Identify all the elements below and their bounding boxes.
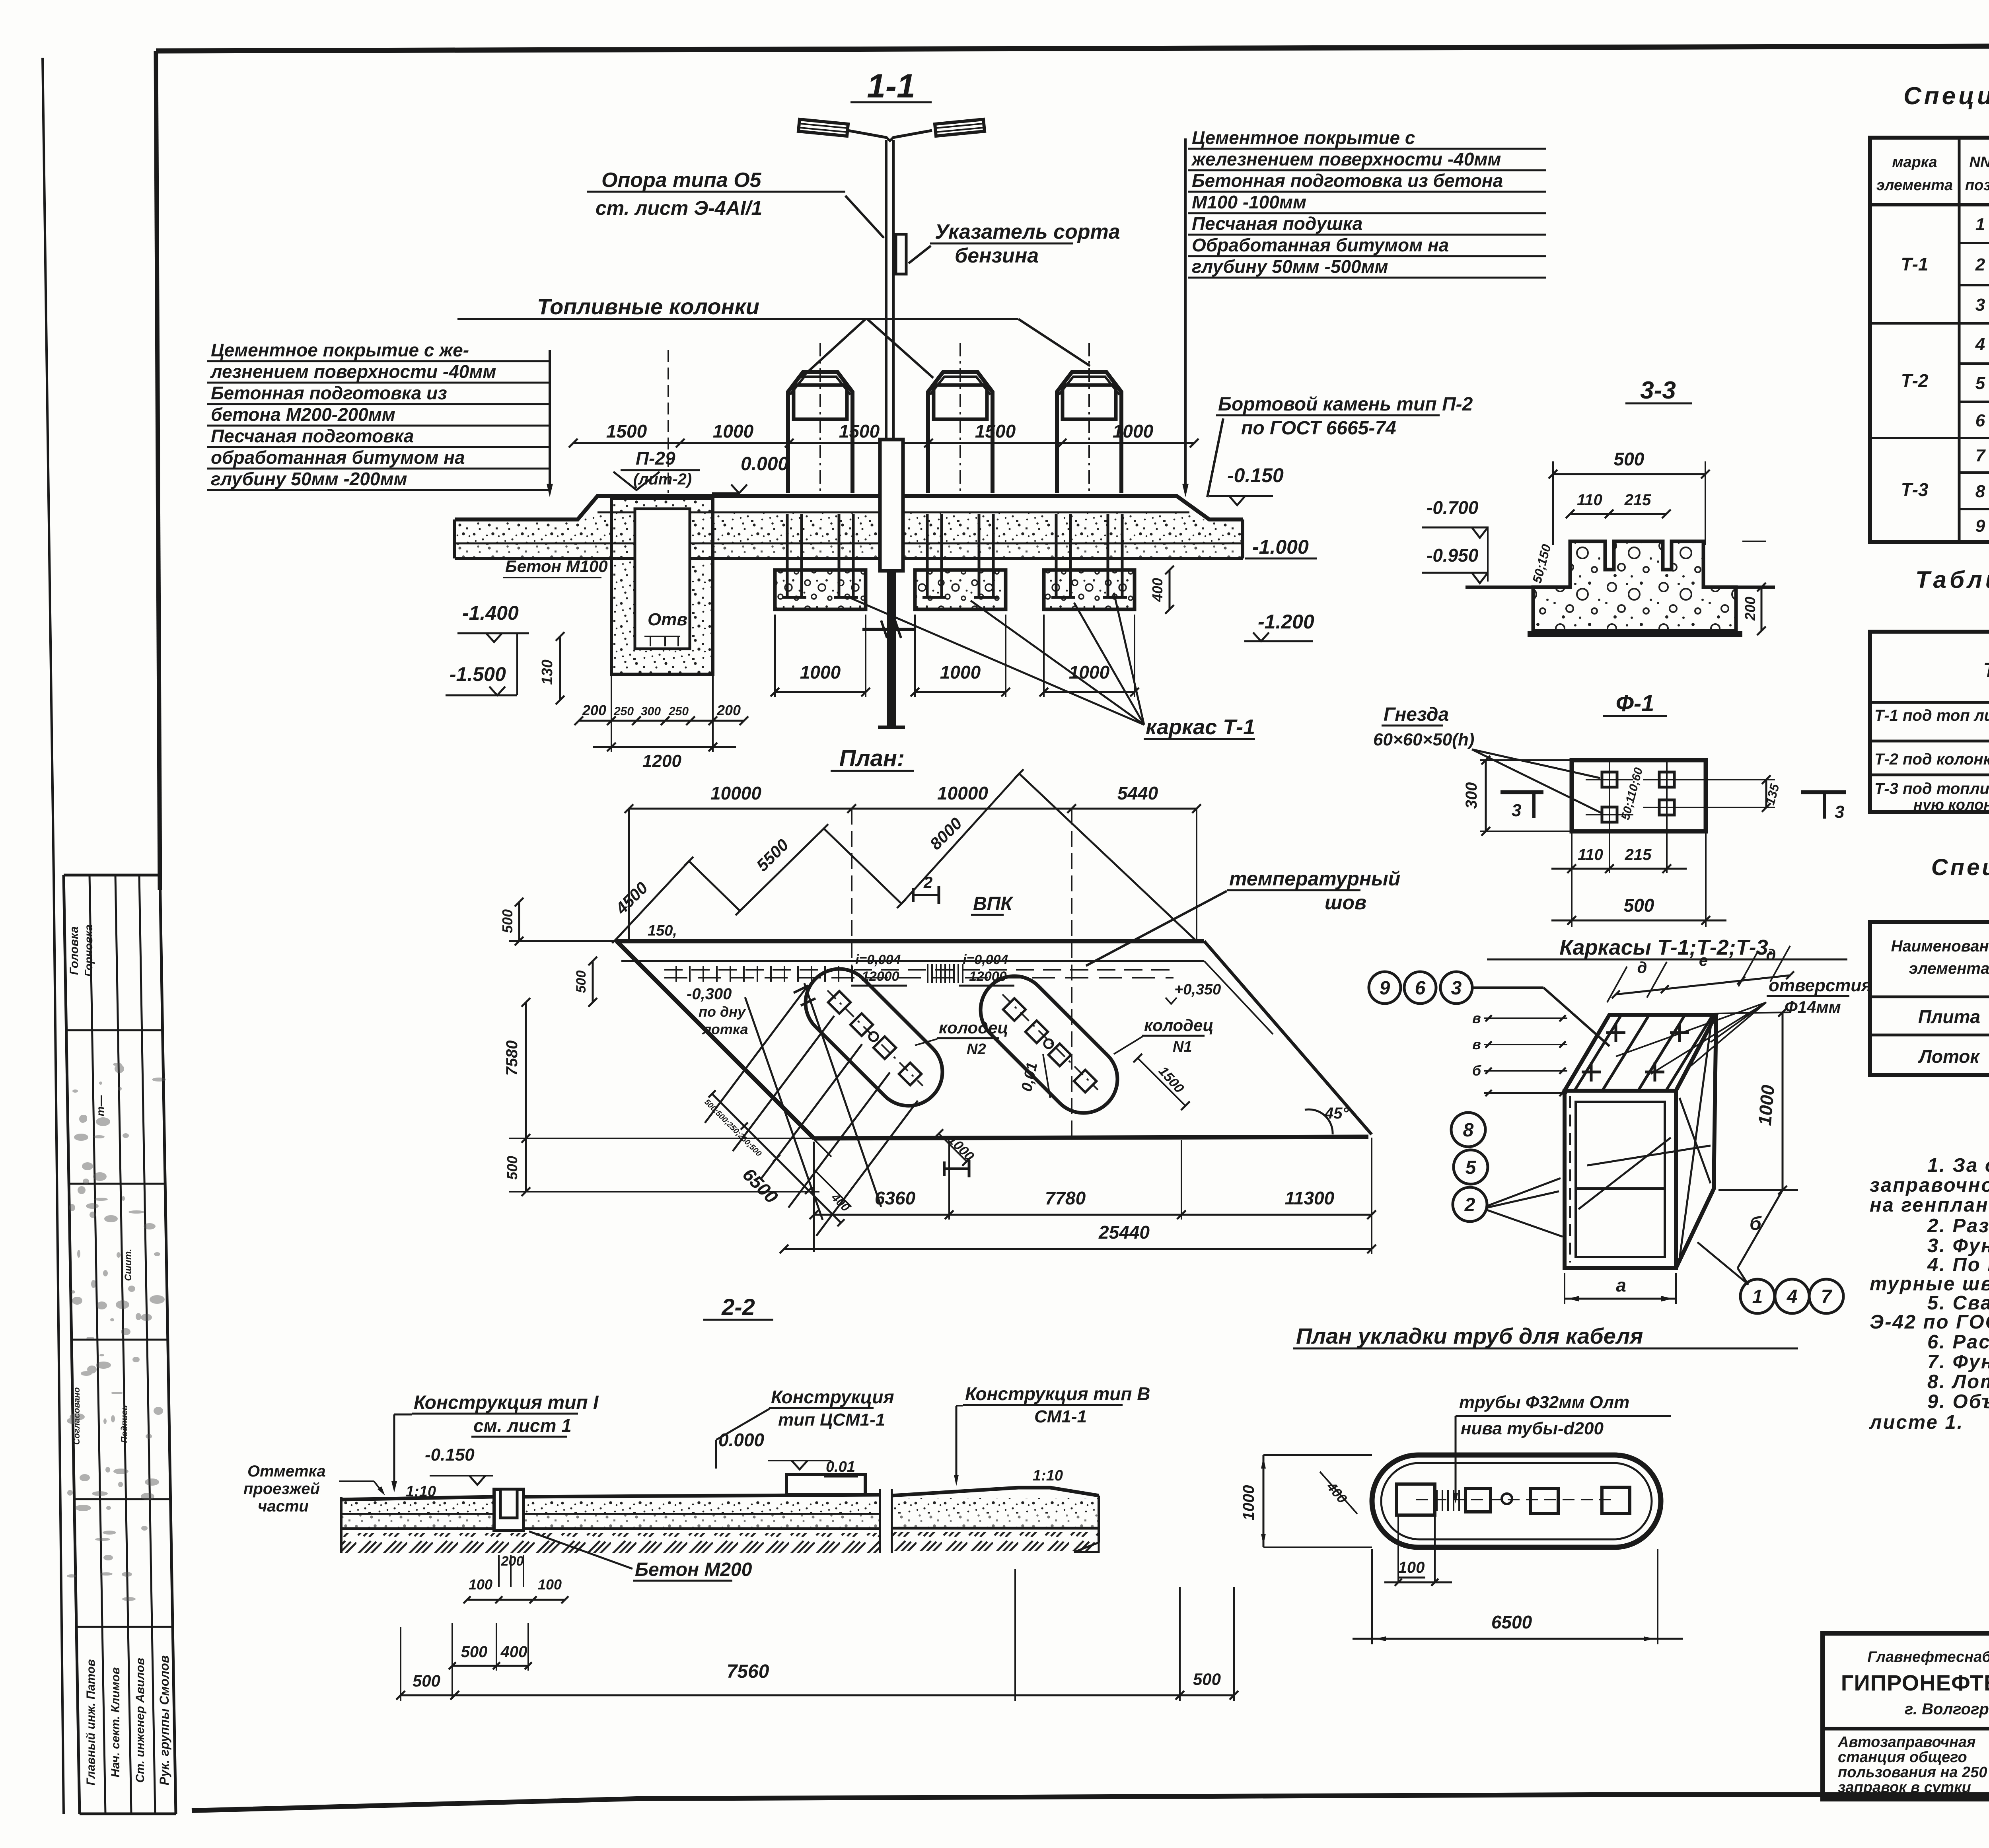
svg-text:элемента: элемента: [1876, 177, 1953, 194]
svg-text:3: 3: [1512, 801, 1521, 820]
svg-text:Ф-1: Ф-1: [1616, 691, 1654, 716]
svg-text:300: 300: [1463, 782, 1480, 809]
svg-text:Т-3: Т-3: [1901, 479, 1929, 500]
svg-text:215: 215: [1625, 846, 1652, 864]
svg-text:1000: 1000: [940, 662, 981, 683]
svg-text:каркас Т-1: каркас Т-1: [1146, 715, 1255, 739]
svg-text:Т-3 под топливосмеситель-: Т-3 под топливосмеситель-: [1874, 780, 1989, 798]
svg-text:1500: 1500: [975, 421, 1016, 442]
svg-text:6500: 6500: [1491, 1612, 1532, 1632]
svg-text:1000: 1000: [1240, 1485, 1257, 1521]
svg-text:500: 500: [499, 909, 516, 933]
svg-text:9. Объем бетонного бордюра: 9. Объем бетонного бордюра включен в таб…: [1927, 1391, 1989, 1412]
svg-text:10000: 10000: [937, 783, 988, 803]
svg-text:1000: 1000: [713, 421, 754, 442]
svg-text:трубы Ф32мм Олт: трубы Ф32мм Олт: [1459, 1393, 1629, 1412]
svg-text:-1.200: -1.200: [1258, 611, 1314, 633]
svg-text:Бетонная подготовка из: Бетонная подготовка из: [211, 383, 447, 403]
svg-text:3: 3: [1975, 295, 1985, 315]
svg-text:Т-1 под топ ливную колон-: Т-1 под топ ливную колон-: [1874, 707, 1989, 724]
svg-text:г. Волгоград.: г. Волгоград.: [1905, 1700, 1989, 1718]
svg-text:ВПК: ВПК: [973, 893, 1014, 914]
svg-text:+0,350: +0,350: [1174, 981, 1221, 998]
svg-text:9: 9: [1380, 978, 1390, 999]
svg-text:Бетон М200: Бетон М200: [635, 1559, 752, 1580]
svg-text:СМ1-1: СМ1-1: [1034, 1407, 1087, 1426]
svg-text:0.000: 0.000: [718, 1430, 765, 1450]
svg-text:2: 2: [1975, 255, 1985, 274]
svg-text:заправок в сутки: заправок в сутки: [1838, 1779, 1971, 1796]
svg-text:Сшит.: Сшит.: [123, 1249, 134, 1281]
svg-text:500: 500: [574, 971, 589, 993]
svg-text:7: 7: [1821, 1286, 1833, 1307]
svg-text:200: 200: [501, 1554, 524, 1569]
svg-text:5440: 5440: [1117, 783, 1158, 803]
svg-text:температурный: температурный: [1229, 868, 1400, 890]
svg-text:7: 7: [1975, 446, 1986, 465]
svg-text:1: 1: [1752, 1286, 1763, 1307]
svg-text:2: 2: [1464, 1194, 1475, 1216]
svg-text:i=0,004: i=0,004: [963, 952, 1008, 967]
svg-text:2. Разрез колонок условно: 2. Разрез колонок условно не показан.: [1927, 1215, 1989, 1237]
svg-text:1200: 1200: [642, 751, 681, 771]
svg-text:Плита: Плита: [1918, 1006, 1980, 1027]
svg-text:300: 300: [641, 705, 661, 718]
svg-text:N1: N1: [1173, 1039, 1192, 1055]
svg-text:3-3: 3-3: [1640, 377, 1676, 404]
svg-text:8: 8: [1463, 1120, 1474, 1141]
svg-text:0.01: 0.01: [826, 1459, 855, 1475]
svg-text:200: 200: [716, 702, 741, 718]
svg-text:250: 250: [613, 705, 634, 718]
svg-text:500: 500: [504, 1156, 520, 1180]
svg-text:Ф14мм: Ф14мм: [1785, 998, 1841, 1016]
svg-text:в: в: [1472, 1036, 1481, 1052]
svg-text:листе 1.: листе 1.: [1869, 1412, 1964, 1433]
svg-text:см. лист 1: см. лист 1: [473, 1415, 572, 1436]
svg-text:бензина: бензина: [955, 244, 1039, 267]
svg-text:Бортовой камень тип П-2: Бортовой камень тип П-2: [1218, 394, 1473, 415]
svg-text:-1.000: -1.000: [1252, 536, 1309, 558]
svg-text:Отв: Отв: [648, 610, 687, 629]
svg-text:Лоток: Лоток: [1918, 1046, 1980, 1067]
svg-text:i=0,004: i=0,004: [855, 952, 901, 967]
svg-text:Отметка: Отметка: [247, 1463, 326, 1480]
svg-text:марка: марка: [1892, 154, 1937, 171]
svg-text:Бетон М100: Бетон М100: [505, 557, 608, 576]
svg-text:е: е: [1699, 952, 1708, 969]
svg-text:N2: N2: [967, 1041, 986, 1058]
svg-text:3. Фундамент под каркасы 1: 3. Фундамент под каркасы 1х1х0,4 принят …: [1927, 1235, 1989, 1257]
svg-text:План укладки труб для кабеля: План укладки труб для кабеля: [1296, 1323, 1643, 1348]
svg-text:2: 2: [923, 874, 932, 891]
svg-text:Цементное покрытие с же-: Цементное покрытие с же-: [211, 340, 469, 360]
svg-text:NN: NN: [1970, 154, 1989, 171]
svg-text:М100 -100мм: М100 -100мм: [1192, 192, 1306, 212]
svg-text:на генплане: на генплане: [1870, 1194, 1989, 1216]
svg-text:нива тубы-d200: нива тубы-d200: [1461, 1419, 1604, 1438]
svg-text:7780: 7780: [1045, 1188, 1086, 1208]
svg-text:в: в: [1472, 1010, 1481, 1026]
svg-text:Ст. инженер Авилов: Ст. инженер Авилов: [134, 1658, 147, 1783]
svg-text:Нач. сект. Климов: Нач. сект. Климов: [109, 1667, 122, 1778]
svg-text:150,: 150,: [648, 922, 677, 939]
svg-text:Подпись: Подпись: [119, 1405, 129, 1443]
svg-text:Наименование: Наименование: [1891, 938, 1989, 955]
svg-text:1500: 1500: [606, 421, 647, 442]
svg-text:Таблица размеров каркасов Т-1: Таблица размеров каркасов Т-1; Т-2; Т-3.: [1915, 566, 1989, 593]
svg-text:100: 100: [538, 1576, 562, 1593]
svg-text:Указатель сорта: Указатель сорта: [935, 220, 1120, 243]
svg-text:д: д: [1637, 959, 1647, 977]
svg-text:12000: 12000: [969, 969, 1007, 984]
svg-text:по дну: по дну: [699, 1004, 746, 1020]
svg-text:Конструкция тип I: Конструкция тип I: [414, 1392, 599, 1413]
svg-text:4: 4: [1787, 1286, 1798, 1307]
svg-text:60×60×50(h): 60×60×50(h): [1373, 730, 1474, 749]
svg-text:-1.400: -1.400: [462, 602, 519, 624]
svg-text:Цементное покрытие с: Цементное покрытие с: [1192, 127, 1415, 148]
svg-text:-0,300: -0,300: [687, 985, 732, 1003]
svg-text:1:10: 1:10: [1033, 1467, 1063, 1484]
svg-text:6: 6: [1975, 411, 1985, 430]
svg-text:б: б: [1472, 1062, 1482, 1079]
svg-text:3: 3: [1835, 802, 1844, 822]
svg-text:10000: 10000: [710, 783, 761, 803]
svg-text:7. Фундамент Ф-1 замаркиров: 7. Фундамент Ф-1 замаркирован на листе А…: [1927, 1351, 1989, 1373]
svg-text:Т-2 под колонку воздух-вода: Т-2 под колонку воздух-вода: [1874, 751, 1989, 768]
svg-text:Главнефтеснаб РСФСР: Главнефтеснаб РСФСР: [1867, 1649, 1989, 1665]
svg-text:7560: 7560: [727, 1661, 769, 1682]
svg-text:5: 5: [1975, 373, 1985, 393]
svg-text:400: 400: [1149, 578, 1166, 602]
svg-text:3: 3: [1451, 978, 1462, 999]
svg-text:бетона М200-200мм: бетона М200-200мм: [211, 404, 395, 425]
svg-text:пользования на 250: пользования на 250: [1838, 1764, 1987, 1781]
svg-text:проезжей: проезжей: [243, 1480, 320, 1498]
svg-text:тип ЦСМ1-1: тип ЦСМ1-1: [778, 1410, 885, 1430]
svg-text:500: 500: [461, 1643, 488, 1661]
svg-text:Спецификация стали на карка: Спецификация стали на каркасы Т-1;Т-2;Т-…: [1903, 82, 1989, 110]
svg-text:1. За относительную отметку: 1. За относительную отметку 0 принята от…: [1927, 1155, 1989, 1176]
svg-text:8: 8: [1975, 482, 1985, 501]
svg-text:Гнезда: Гнезда: [1384, 704, 1449, 725]
svg-text:а: а: [1616, 1275, 1626, 1296]
svg-text:110: 110: [1578, 846, 1603, 864]
svg-text:Обработанная битумом на: Обработанная битумом на: [1192, 235, 1449, 255]
svg-text:215: 215: [1624, 491, 1651, 509]
svg-text:-0.950: -0.950: [1427, 545, 1479, 566]
svg-text:Рук. группы Смолов: Рук. группы Смолов: [157, 1655, 171, 1786]
svg-text:д: д: [1766, 946, 1776, 964]
svg-text:Главный инж. Патов: Главный инж. Патов: [84, 1659, 97, 1785]
svg-text:Т-2: Т-2: [1901, 370, 1929, 391]
svg-text:Песчаная подготовка: Песчаная подготовка: [211, 426, 414, 446]
svg-text:1: 1: [1975, 215, 1985, 234]
svg-text:Каркасы Т-1;Т-2;Т-3.: Каркасы Т-1;Т-2;Т-3.: [1559, 936, 1774, 959]
svg-text:11300: 11300: [1285, 1188, 1335, 1208]
svg-text:станция общего: станция общего: [1838, 1749, 1967, 1766]
svg-text:части: части: [258, 1498, 309, 1515]
svg-text:Топливные колонки: Топливные колонки: [537, 294, 759, 319]
svg-text:глубину 50мм -200мм: глубину 50мм -200мм: [211, 469, 407, 489]
svg-text:-0.700: -0.700: [1427, 497, 1479, 518]
svg-text:9: 9: [1975, 516, 1985, 536]
svg-text:турные швы, конструкцию кот: турные швы, конструкцию которых см. АР-3…: [1870, 1273, 1989, 1295]
svg-text:2-2: 2-2: [721, 1294, 755, 1320]
svg-text:130: 130: [539, 659, 556, 685]
svg-text:500: 500: [1624, 895, 1654, 916]
svg-text:Бетонная подготовка из бетона: Бетонная подготовка из бетона: [1192, 170, 1503, 191]
svg-text:1000: 1000: [1113, 421, 1154, 442]
svg-text:заправочного островка, соотв: заправочного островка, соответствующая о…: [1870, 1175, 1989, 1196]
svg-text:400: 400: [500, 1643, 527, 1661]
svg-text:Конструкция тип В: Конструкция тип В: [965, 1383, 1150, 1404]
svg-text:Автозаправочная: Автозаправочная: [1837, 1734, 1975, 1751]
svg-text:Горновка: Горновка: [82, 924, 95, 977]
svg-text:т—: т—: [94, 1095, 107, 1117]
svg-text:лезнением поверхности -40мм: лезнением поверхности -40мм: [210, 361, 496, 382]
svg-text:колодец: колодец: [1144, 1016, 1214, 1035]
svg-text:элемента: элемента: [1909, 960, 1989, 977]
svg-text:6: 6: [1415, 978, 1426, 999]
svg-text:П-29: П-29: [636, 448, 675, 469]
svg-text:200: 200: [582, 702, 606, 718]
svg-text:железнением поверхности -40мм: железнением поверхности -40мм: [1191, 149, 1501, 169]
svg-text:Головка: Головка: [68, 926, 81, 975]
svg-text:шов: шов: [1325, 891, 1366, 914]
svg-text:Конструкция: Конструкция: [771, 1387, 894, 1407]
svg-text:0.000: 0.000: [741, 453, 788, 475]
svg-text:1000: 1000: [800, 662, 841, 683]
svg-text:1000: 1000: [1754, 1084, 1779, 1126]
svg-text:отверстия: отверстия: [1769, 976, 1872, 995]
svg-text:колодец: колодец: [939, 1018, 1008, 1037]
svg-text:-0.150: -0.150: [425, 1445, 475, 1465]
svg-text:Спецификация сборных железоб: Спецификация сборных железобетонных: [1931, 854, 1989, 880]
svg-text:100: 100: [1398, 1559, 1425, 1576]
svg-text:-0.150: -0.150: [1227, 464, 1284, 486]
svg-text:500: 500: [1614, 449, 1645, 469]
svg-text:500: 500: [413, 1671, 440, 1690]
svg-text:5: 5: [1465, 1157, 1477, 1178]
svg-text:4: 4: [1975, 335, 1985, 354]
svg-text:100: 100: [469, 1576, 492, 1593]
svg-text:Тип каркаса: Тип каркаса: [1983, 659, 1989, 682]
svg-text:обработанная битумом на: обработанная битумом на: [211, 447, 465, 468]
svg-text:1000: 1000: [1069, 662, 1110, 683]
svg-text:4. По площадке и лотку уст: 4. По площадке и лотку устраиваются темп…: [1927, 1254, 1989, 1276]
svg-text:7580: 7580: [503, 1041, 521, 1076]
svg-text:5. Сварку металлоконструкций: 5. Сварку металлоконструкций производить…: [1927, 1292, 1989, 1314]
svg-text:8. Лотки Л16а замаркированы: 8. Лотки Л16а замаркированы на листе АР-…: [1927, 1371, 1989, 1393]
svg-text:Песчаная подушка: Песчаная подушка: [1192, 213, 1362, 234]
svg-text:110: 110: [1577, 491, 1602, 509]
svg-text:-1.500: -1.500: [450, 663, 506, 685]
svg-text:поз.: поз.: [1965, 177, 1989, 194]
svg-text:6. Расход бетона на колоде: 6. Расход бетона на колодец М100- 1.5 м³: [1927, 1331, 1989, 1353]
svg-text:ную колонку: ную колонку: [1913, 797, 1989, 813]
svg-text:1500: 1500: [839, 421, 880, 442]
svg-text:200: 200: [1742, 597, 1758, 621]
svg-text:ГИПРОНЕФТЕТРАНС: ГИПРОНЕФТЕТРАНС: [1841, 1670, 1989, 1695]
svg-text:глубину 50мм -500мм: глубину 50мм -500мм: [1192, 256, 1388, 277]
svg-text:250: 250: [668, 705, 689, 718]
svg-text:по ГОСТ 6665-74: по ГОСТ 6665-74: [1241, 418, 1396, 439]
svg-text:1-1: 1-1: [867, 67, 915, 105]
svg-text:лотка: лотка: [702, 1021, 748, 1037]
svg-text:Т-1: Т-1: [1901, 254, 1929, 274]
svg-text:6360: 6360: [875, 1188, 916, 1208]
svg-text:500: 500: [1193, 1670, 1221, 1688]
svg-text:Опора типа О5: Опора типа О5: [601, 169, 762, 192]
svg-text:План:: План:: [839, 745, 905, 771]
svg-text:ст. лист Э-4АI/1: ст. лист Э-4АI/1: [596, 197, 762, 219]
svg-text:Э-42 по ГОСТ 9467-60 толщи: Э-42 по ГОСТ 9467-60 толщина шва 4-5мм,: [1870, 1311, 1989, 1333]
svg-text:25440: 25440: [1098, 1222, 1150, 1243]
